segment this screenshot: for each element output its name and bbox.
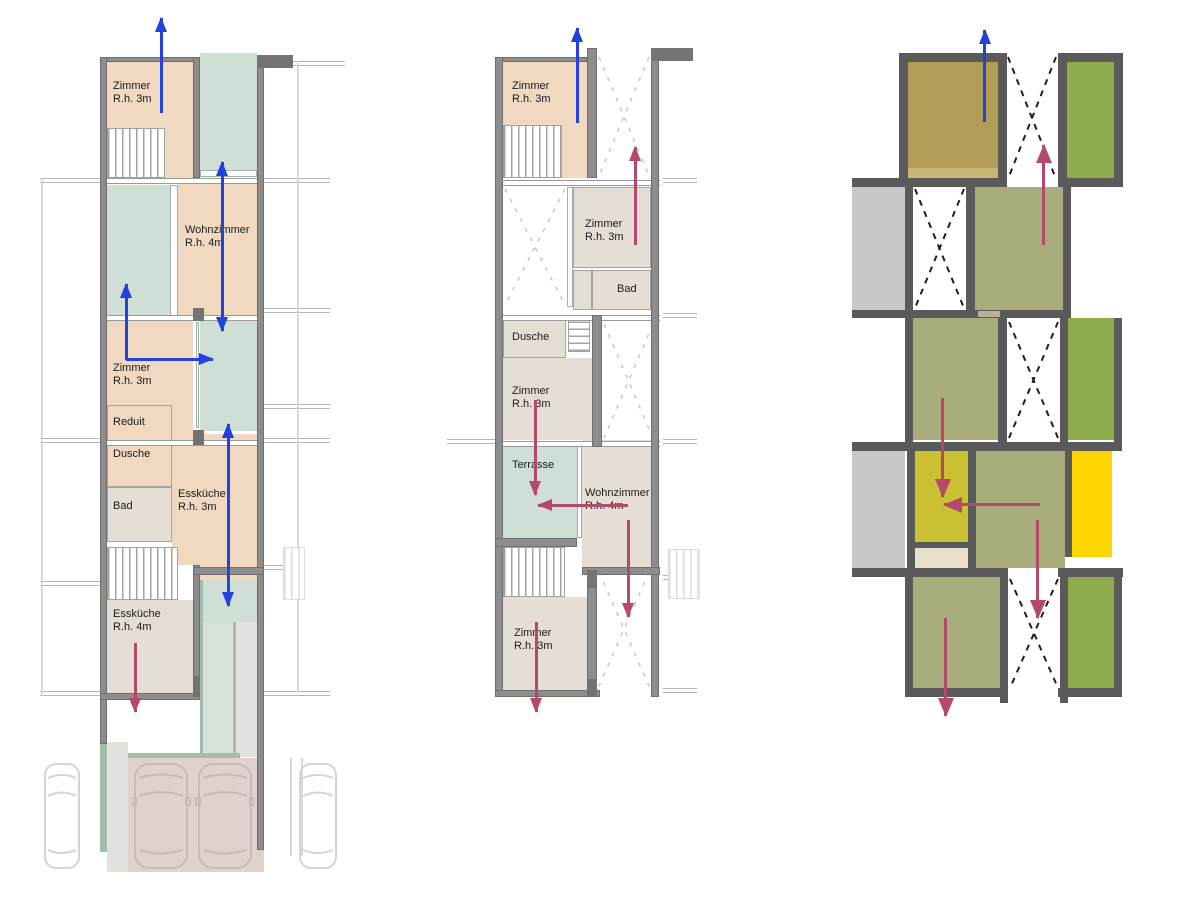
wall (905, 187, 913, 318)
wall (907, 542, 976, 548)
block-olive (975, 187, 1063, 310)
wall-opening (978, 311, 1000, 317)
block-beige (915, 548, 970, 568)
architectural-sections-canvas: ZimmerR.h. 3m WohnzimmerR.h. 4m ZimmerR.… (0, 0, 1200, 900)
block-gray (852, 187, 905, 310)
block-gray (852, 451, 905, 568)
wall (907, 443, 915, 577)
void-x-marker (913, 187, 966, 310)
wall (1114, 53, 1123, 187)
block-olive (913, 577, 1000, 688)
massing-diagram (0, 0, 1200, 900)
block-yellow (1072, 451, 1112, 557)
block-highlight (908, 168, 998, 178)
wall (905, 688, 1008, 697)
wall (1058, 53, 1067, 187)
wall (899, 53, 1007, 62)
wall (1060, 318, 1068, 442)
red-down-arrow (944, 618, 947, 716)
red-up-arrow (1042, 145, 1045, 245)
wall (1058, 53, 1123, 62)
wall (899, 53, 908, 187)
wall (1065, 443, 1072, 557)
wall (1114, 568, 1122, 697)
wall (1058, 178, 1123, 187)
void-x-marker (1007, 320, 1060, 440)
red-down-arrow (941, 398, 944, 497)
void-x-marker (1008, 577, 1060, 690)
wall (1000, 568, 1008, 703)
wall (1058, 568, 1123, 577)
block-green (1068, 577, 1114, 688)
red-left-arrow (944, 503, 1040, 506)
wall (998, 318, 1007, 442)
red-down-arrow (1036, 520, 1039, 618)
wall (1063, 178, 1071, 318)
wall (852, 310, 1071, 318)
block-green (1066, 62, 1114, 178)
wall (1058, 688, 1122, 697)
wall (1060, 568, 1068, 703)
block-olive (976, 451, 1065, 568)
wall (905, 568, 913, 697)
wall (966, 187, 975, 318)
wall (852, 178, 1007, 187)
wall (1114, 318, 1122, 442)
block-green (1068, 318, 1114, 440)
block-olive (913, 318, 998, 440)
blue-up-arrow (983, 30, 986, 122)
wall (852, 568, 1008, 577)
wall (852, 442, 1122, 451)
wall (905, 318, 913, 442)
